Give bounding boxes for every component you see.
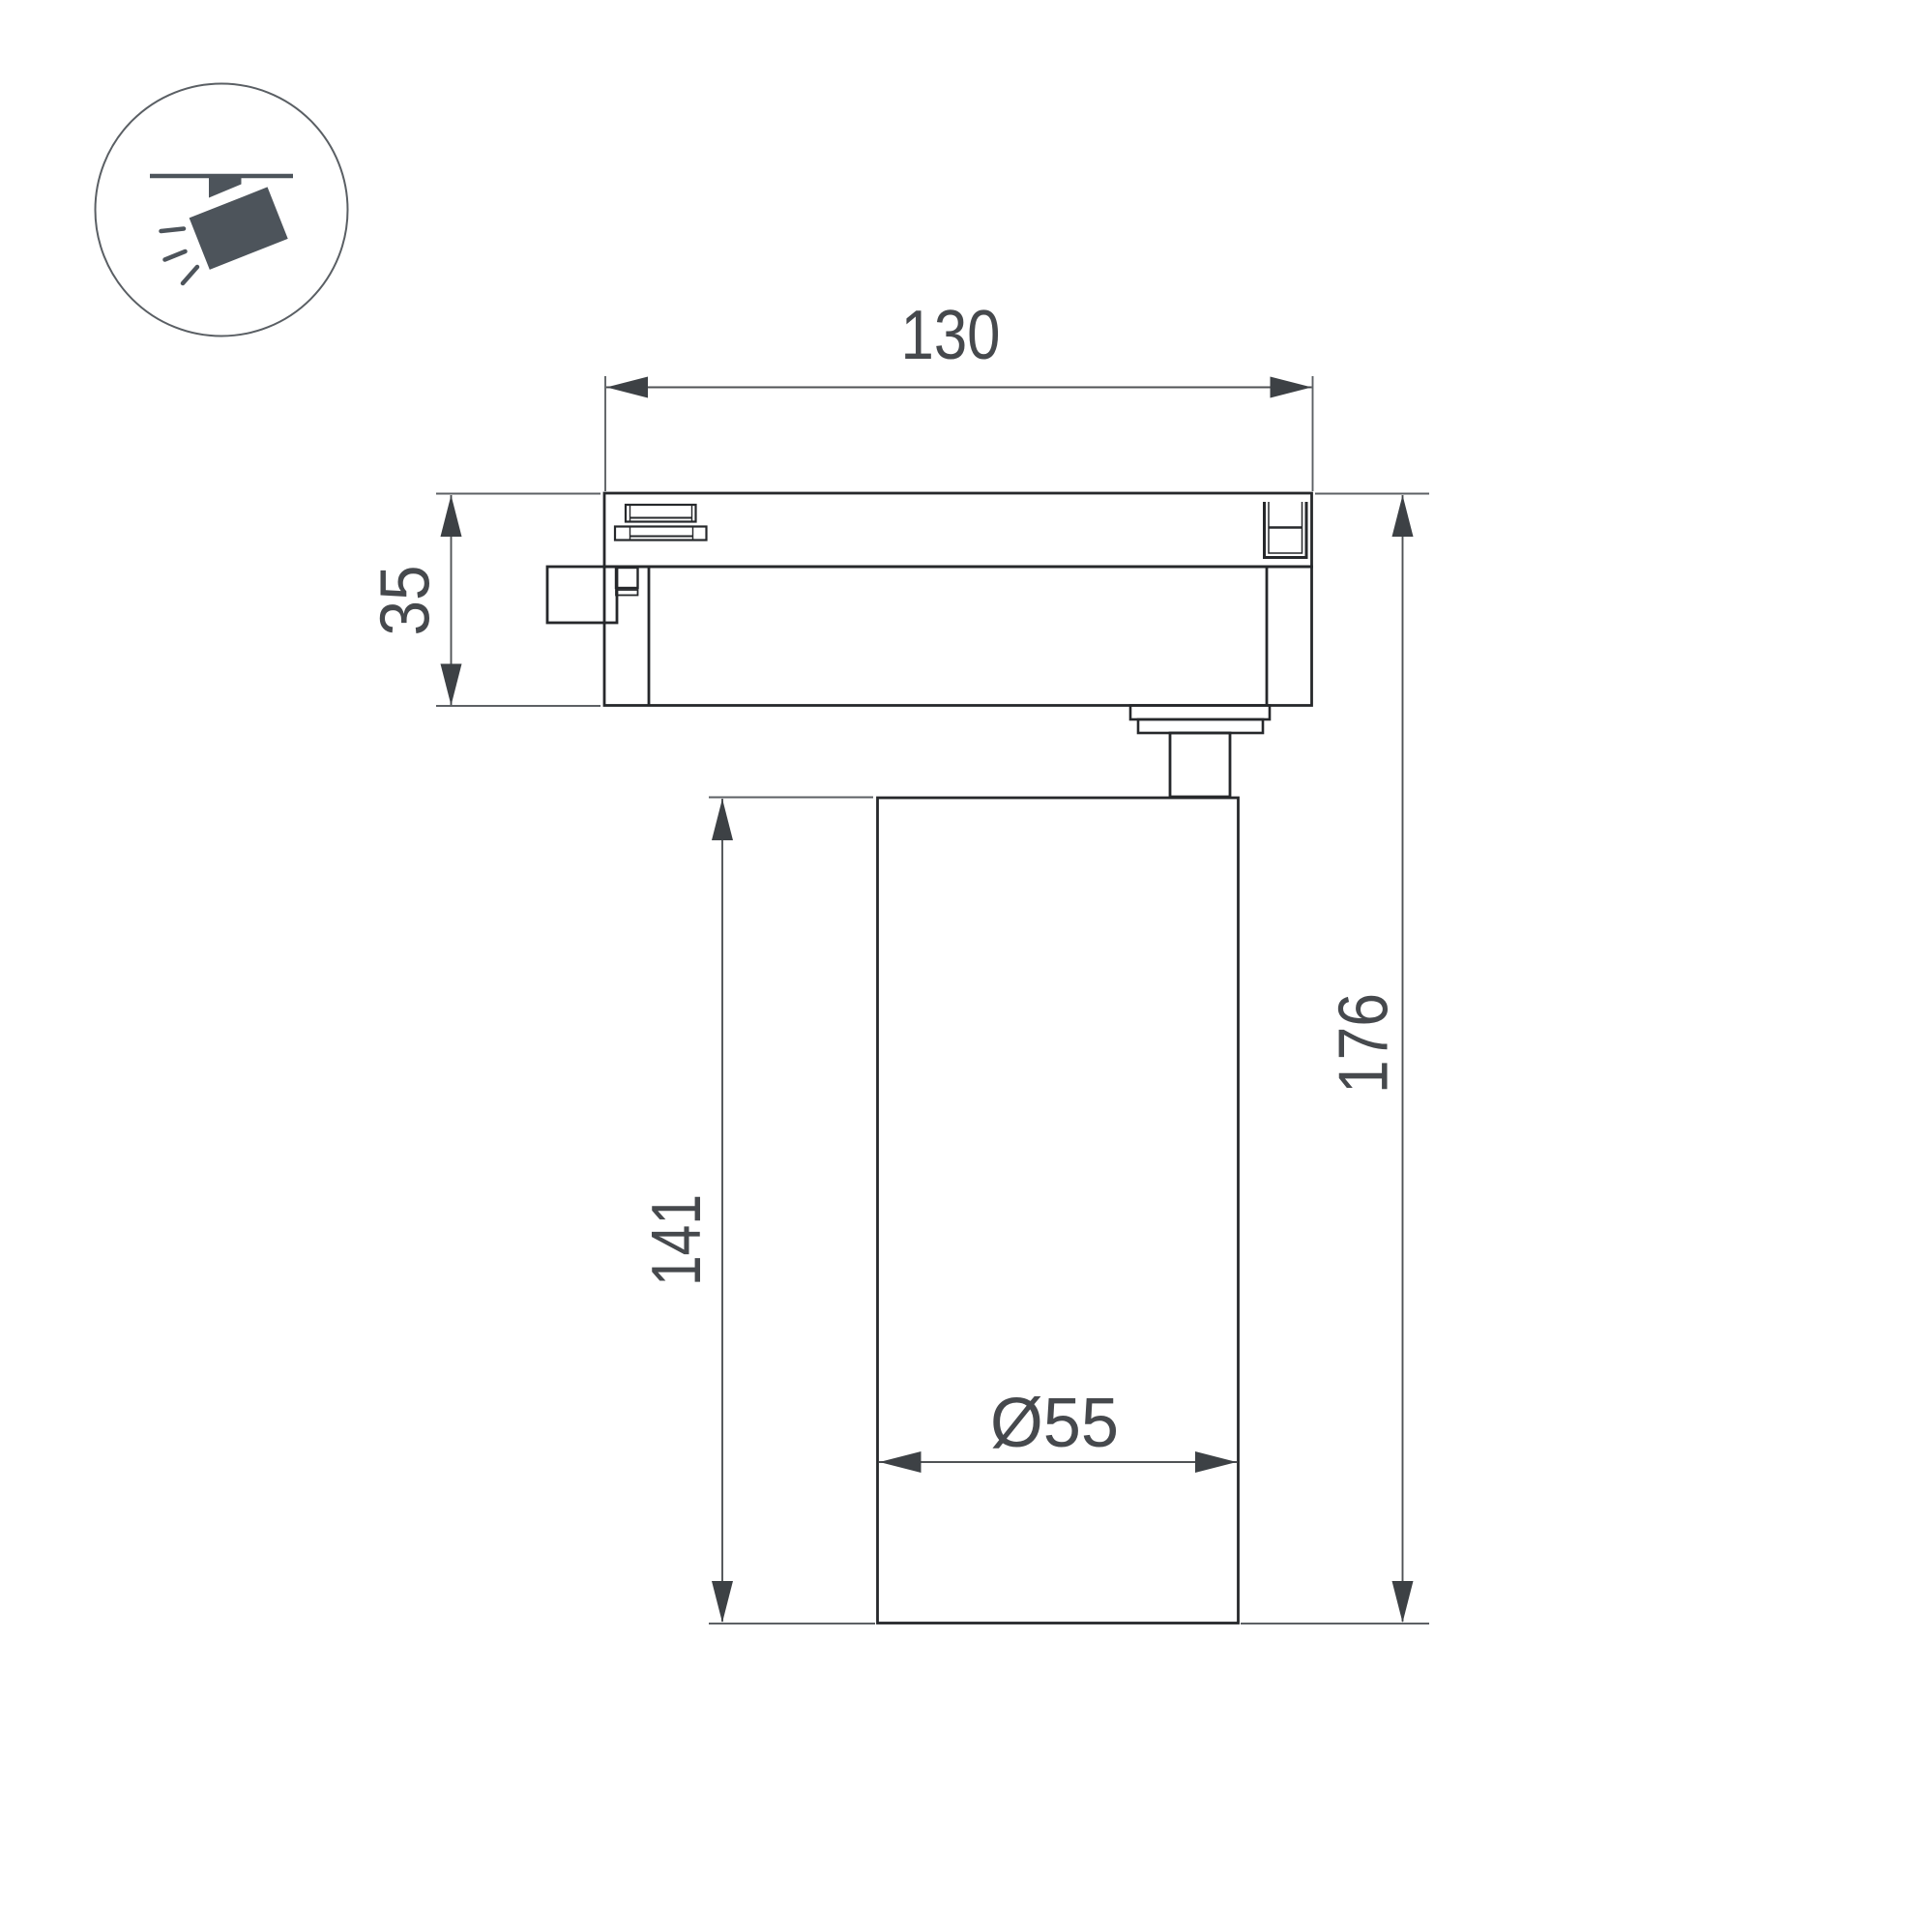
svg-text:130: 130 xyxy=(901,296,1001,374)
svg-text:176: 176 xyxy=(1325,993,1403,1094)
svg-text:Ø55: Ø55 xyxy=(990,1384,1119,1462)
svg-text:141: 141 xyxy=(637,1194,716,1286)
svg-text:35: 35 xyxy=(366,566,445,636)
